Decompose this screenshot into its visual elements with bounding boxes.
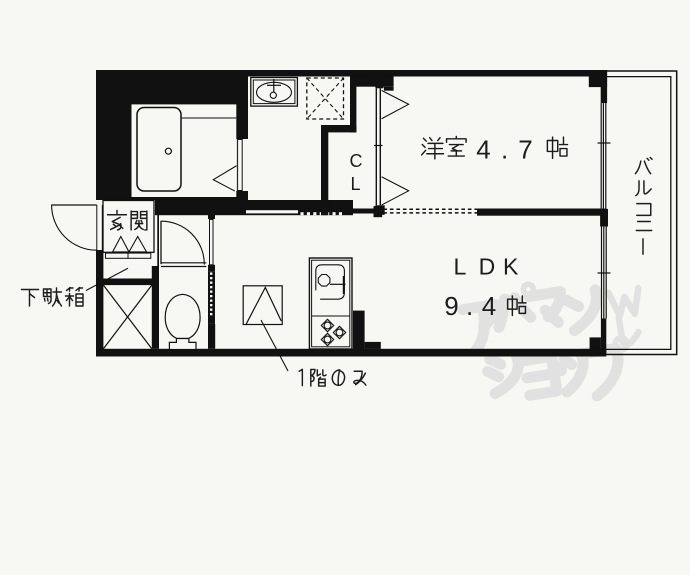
- svg-text:4: 4: [476, 134, 490, 164]
- svg-text:D: D: [479, 253, 496, 279]
- svg-text:K: K: [503, 253, 519, 279]
- svg-text:L: L: [454, 253, 467, 279]
- svg-text:C: C: [350, 151, 363, 171]
- svg-text:4: 4: [482, 291, 496, 321]
- svg-text:9: 9: [444, 291, 458, 321]
- svg-text:7: 7: [518, 134, 532, 164]
- svg-text:.: .: [501, 134, 508, 164]
- svg-text:.: .: [466, 291, 473, 321]
- svg-text:L: L: [351, 174, 361, 194]
